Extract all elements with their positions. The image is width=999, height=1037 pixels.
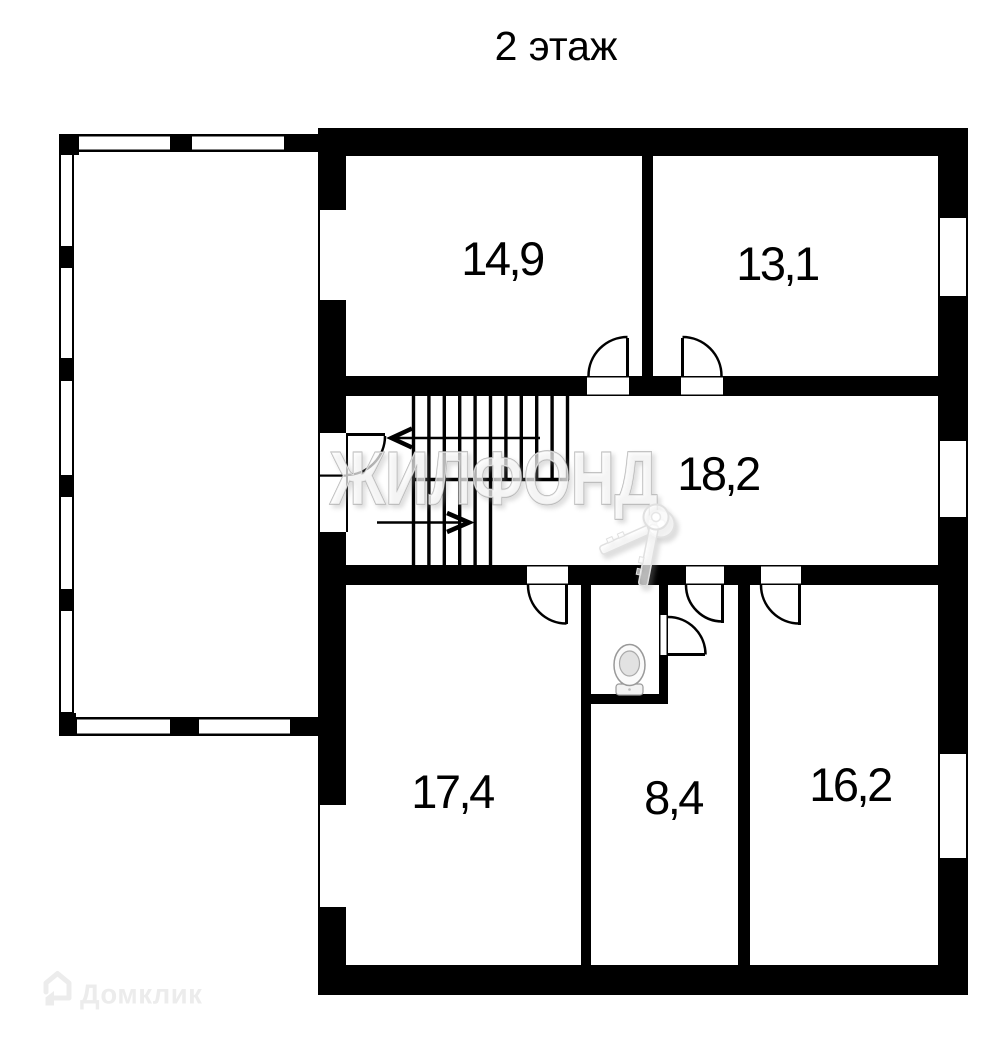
svg-text:Домклик: Домклик xyxy=(80,979,202,1010)
svg-text:13,1: 13,1 xyxy=(736,237,818,290)
svg-text:16,2: 16,2 xyxy=(809,758,891,811)
svg-text:18,2: 18,2 xyxy=(677,447,759,500)
svg-text:14,9: 14,9 xyxy=(461,232,543,285)
svg-text:17,4: 17,4 xyxy=(411,765,494,818)
svg-text:8,4: 8,4 xyxy=(644,771,703,824)
svg-text:ЖИЛФОНД: ЖИЛФОНД xyxy=(329,436,658,520)
svg-text:2 этаж: 2 этаж xyxy=(495,23,618,69)
